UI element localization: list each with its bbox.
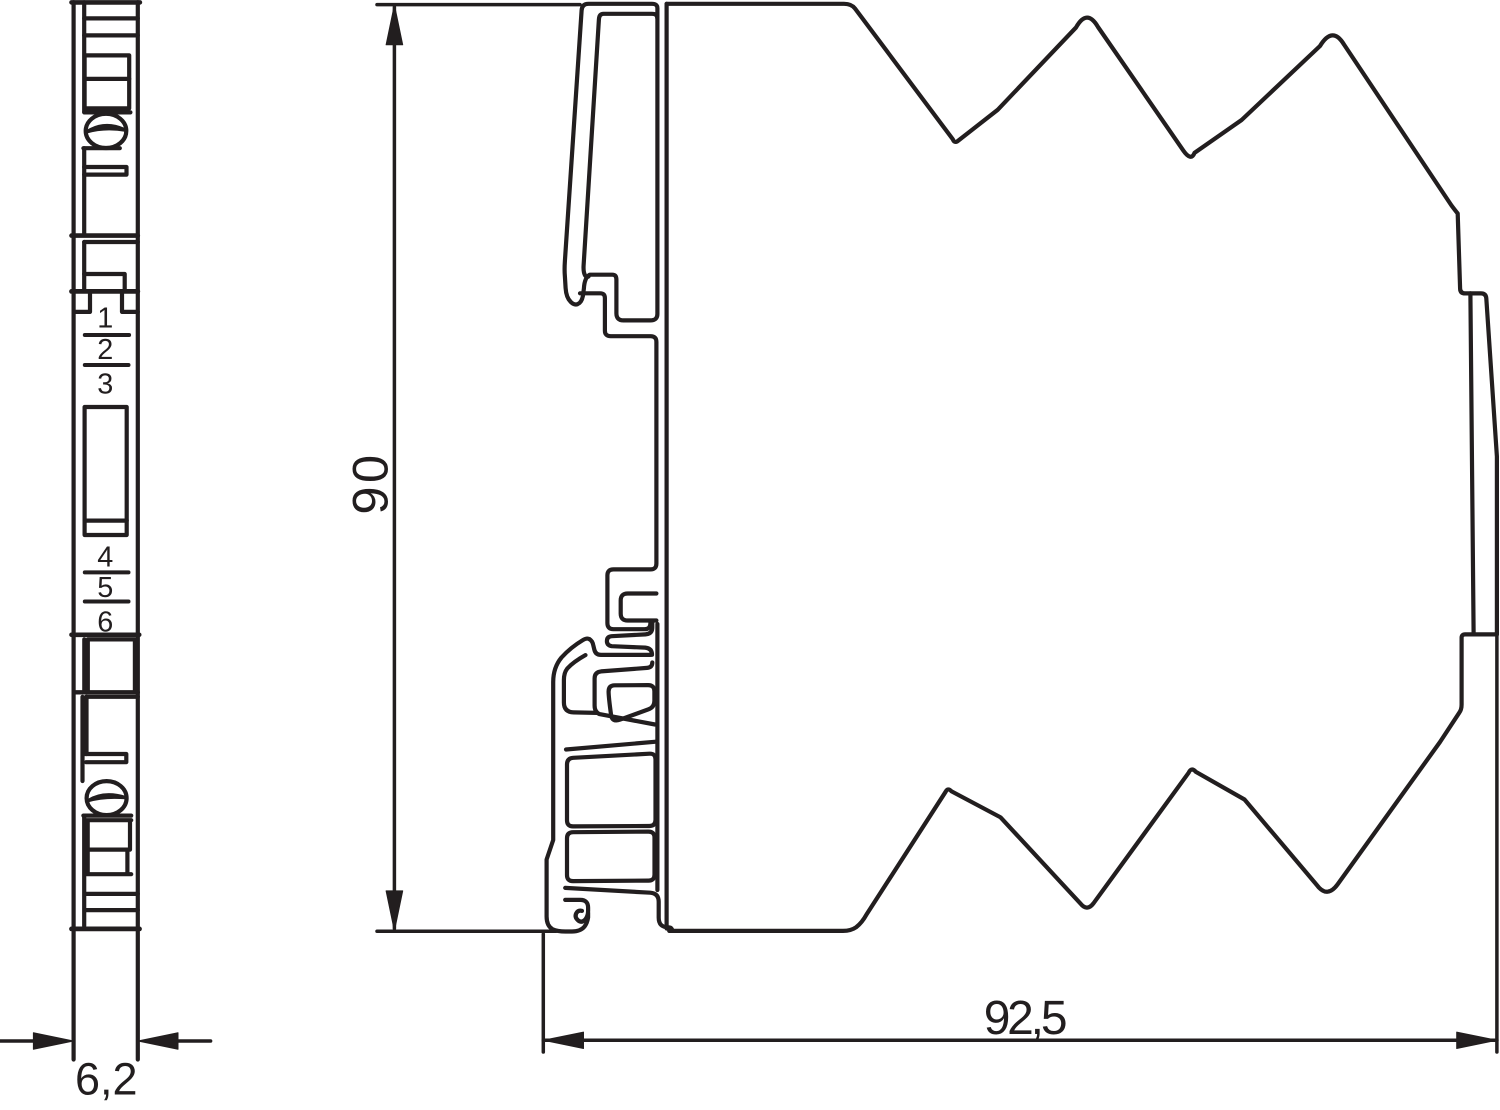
svg-text:4: 4 <box>97 542 113 574</box>
svg-text:5: 5 <box>97 572 113 604</box>
svg-text:90: 90 <box>341 451 398 514</box>
svg-text:6,2: 6,2 <box>75 1054 138 1105</box>
svg-text:2: 2 <box>97 334 113 366</box>
svg-text:3: 3 <box>97 368 113 400</box>
svg-text:92,5: 92,5 <box>984 992 1066 1045</box>
svg-text:1: 1 <box>97 303 113 335</box>
